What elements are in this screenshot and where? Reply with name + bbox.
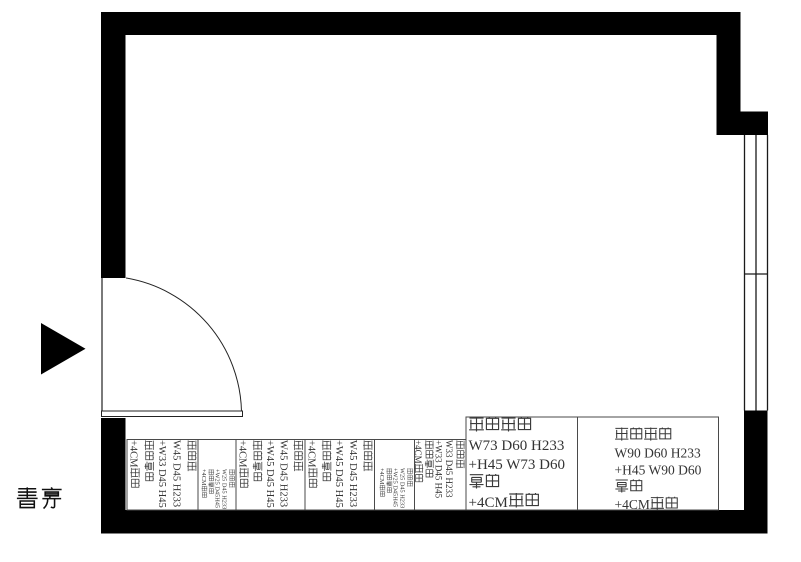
svg-text:+4CM: +4CM xyxy=(615,497,650,512)
svg-text:W73 D60 H233: W73 D60 H233 xyxy=(469,438,565,454)
svg-text:+H45 W73 D60: +H45 W73 D60 xyxy=(469,457,566,473)
svg-text:+H45 W90 D60: +H45 W90 D60 xyxy=(615,463,702,478)
svg-text:W33 D45 H233: W33 D45 H233 xyxy=(444,440,454,498)
svg-text:+W25 D45H45: +W25 D45H45 xyxy=(392,468,399,507)
svg-text:W45 D45 H233: W45 D45 H233 xyxy=(170,440,181,507)
svg-text:W45 D45 H233: W45 D45 H233 xyxy=(347,440,358,507)
svg-text:+4CM: +4CM xyxy=(469,495,508,511)
svg-text:+4CM: +4CM xyxy=(237,440,248,468)
svg-text:+W33 D45 H45: +W33 D45 H45 xyxy=(156,440,167,508)
svg-text:+4CM: +4CM xyxy=(128,440,139,468)
svg-text:W90 D60 H233: W90 D60 H233 xyxy=(615,445,701,460)
svg-text:+4CM: +4CM xyxy=(413,440,423,464)
svg-text:W45 D45 H233: W45 D45 H233 xyxy=(277,440,288,507)
svg-text:+W45 D45 H45: +W45 D45 H45 xyxy=(264,440,275,508)
svg-text:+4CM: +4CM xyxy=(306,440,317,468)
svg-text:+4CM: +4CM xyxy=(378,468,385,485)
svg-text:+W33 D45 H45: +W33 D45 H45 xyxy=(434,440,444,499)
svg-text:+4CM: +4CM xyxy=(200,469,207,486)
svg-text:+W45 D45 H45: +W45 D45 H45 xyxy=(333,440,344,508)
svg-text:+W25 D45H45: +W25 D45H45 xyxy=(214,469,221,508)
